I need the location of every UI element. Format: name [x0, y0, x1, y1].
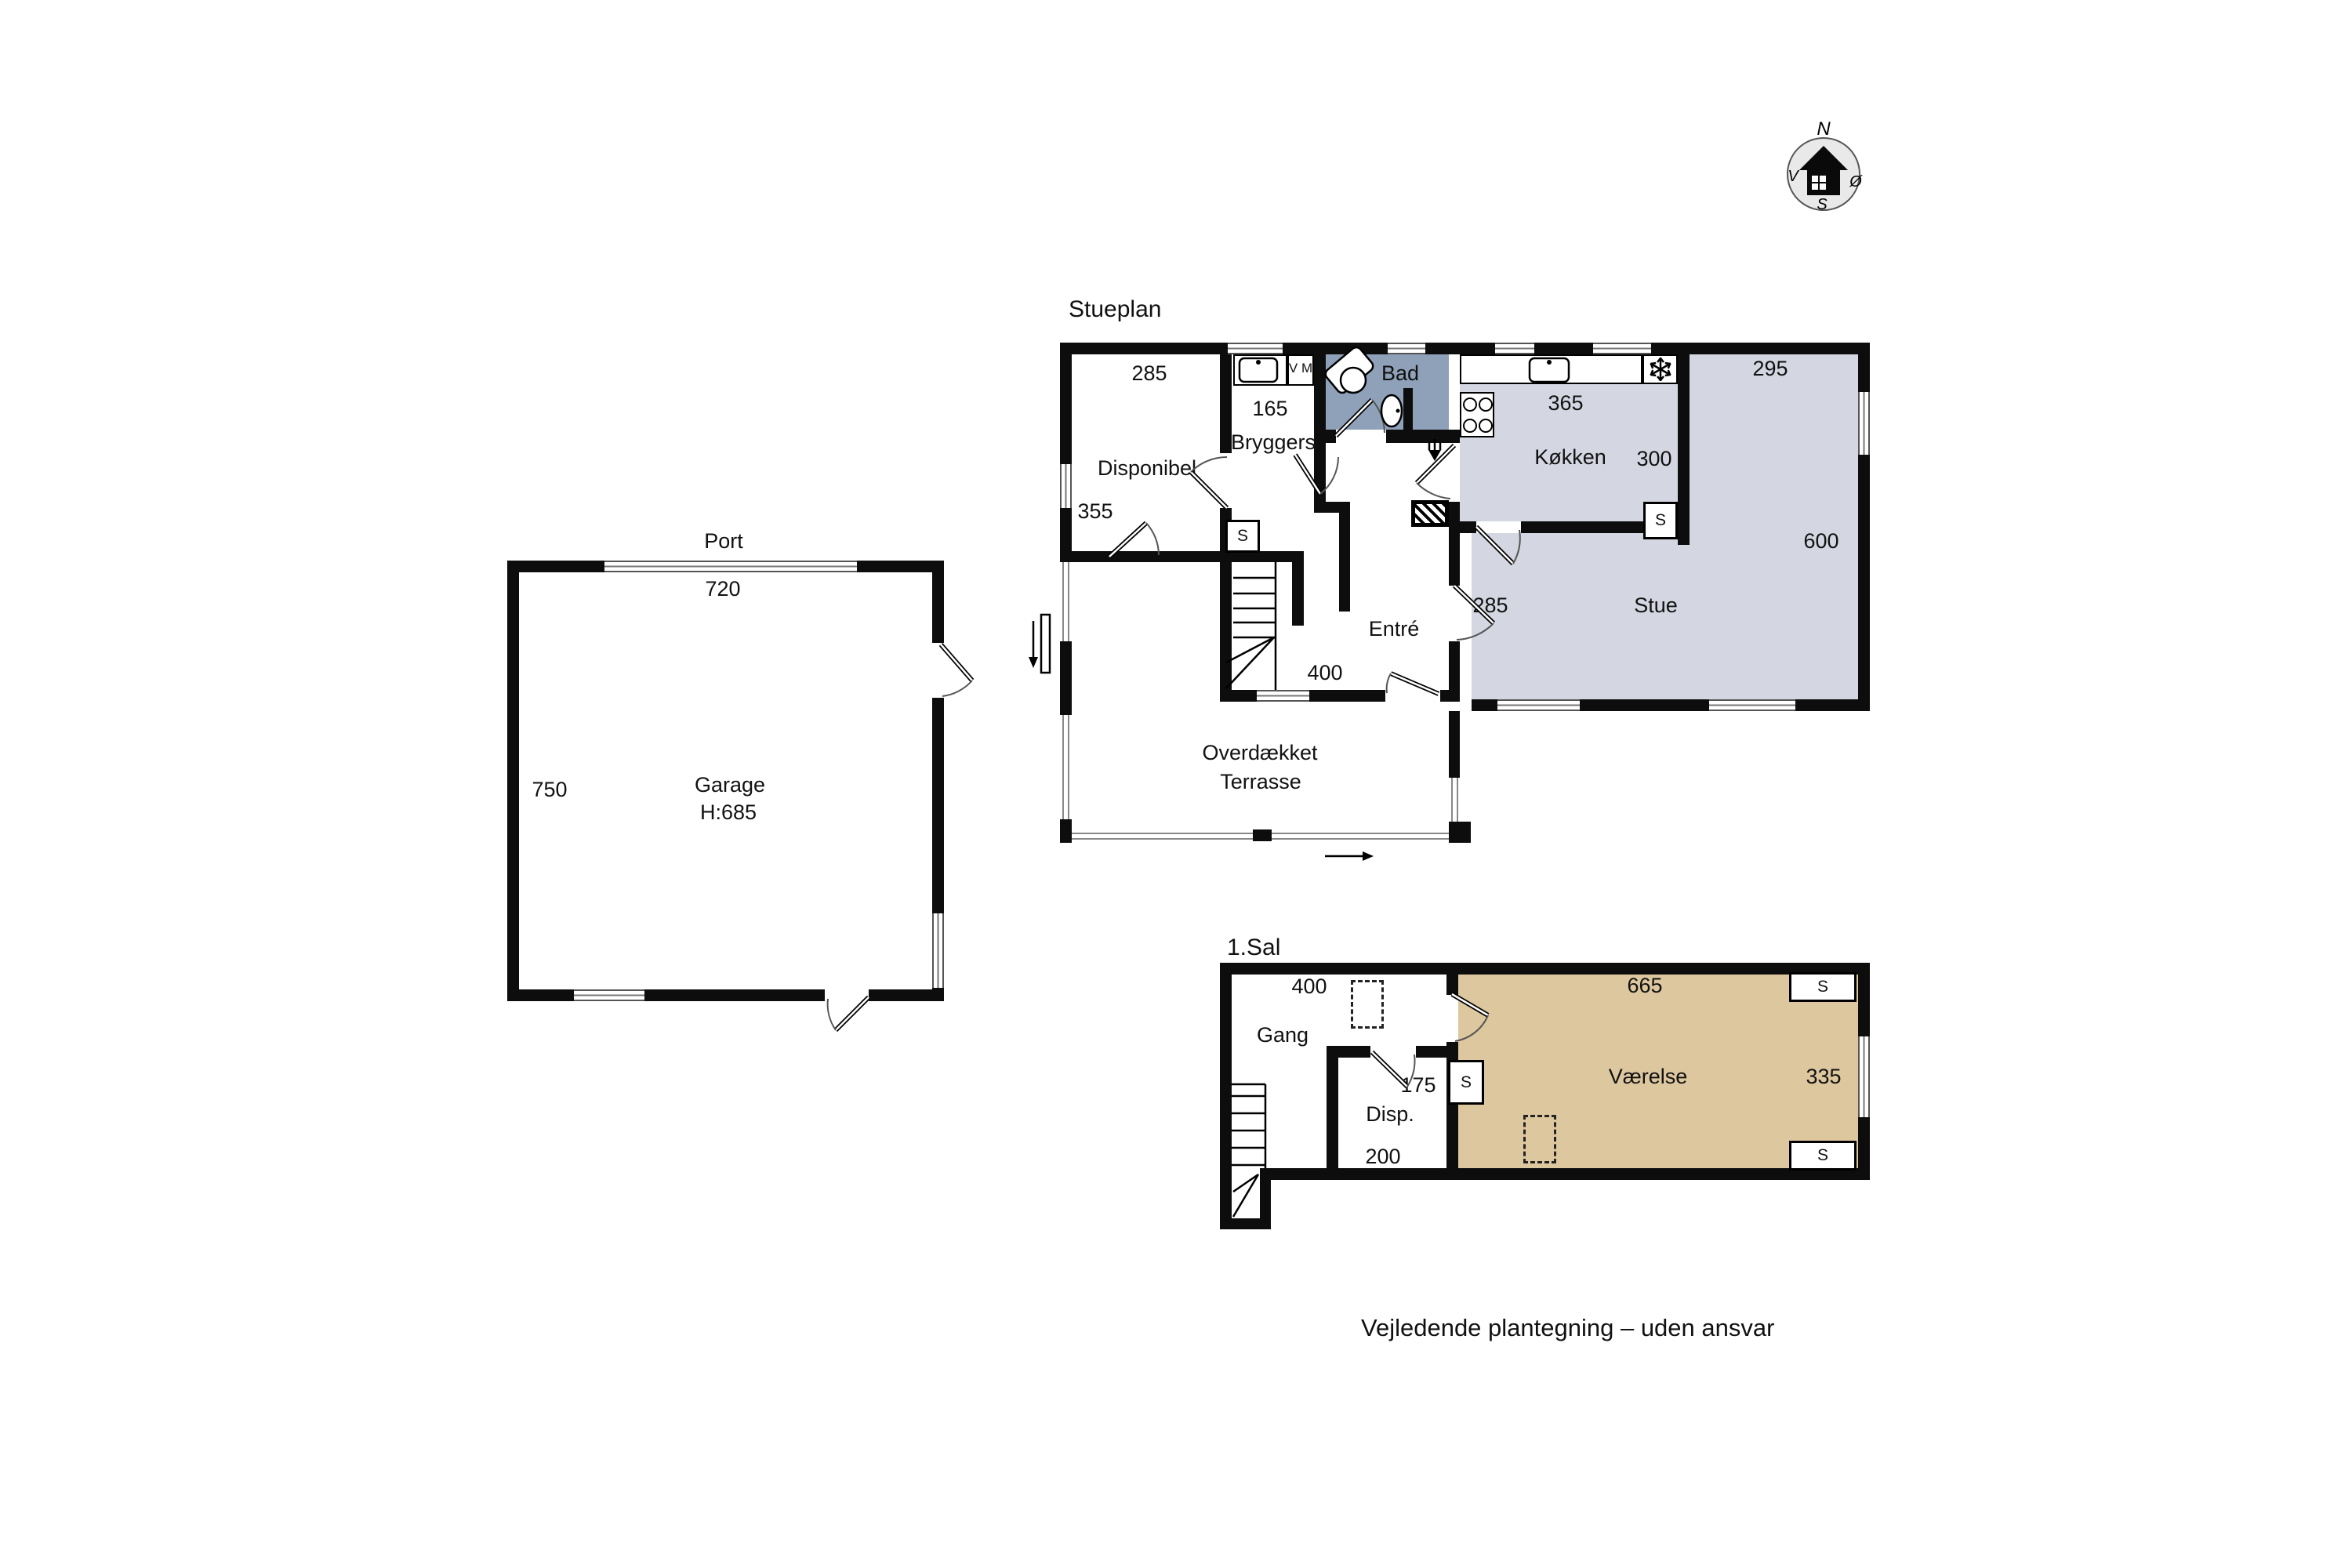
stairs-ground	[1226, 562, 1276, 690]
sink-icon-bryggers	[1240, 358, 1277, 382]
stove-icon	[1464, 398, 1492, 432]
svg-text:S: S	[1817, 196, 1828, 213]
vector-overlay: N V Ø S	[0, 0, 2352, 1568]
floorplan-page: Stueplan	[0, 0, 2352, 1568]
snowflake-icon	[1649, 358, 1672, 381]
sink-icon-kitchen	[1530, 358, 1569, 382]
svg-text:V: V	[1788, 168, 1799, 185]
entrance-marker-west	[1029, 615, 1050, 673]
svg-text:Ø: Ø	[1849, 173, 1863, 191]
svg-text:N: N	[1817, 118, 1831, 140]
toilet-icon	[1381, 395, 1402, 426]
shower-icon	[1323, 345, 1375, 395]
doors	[828, 400, 1520, 1087]
stairs-first-floor	[1232, 1084, 1265, 1217]
compass-icon: N V Ø S	[1788, 118, 1863, 213]
entrance-arrow-south	[1325, 851, 1374, 861]
